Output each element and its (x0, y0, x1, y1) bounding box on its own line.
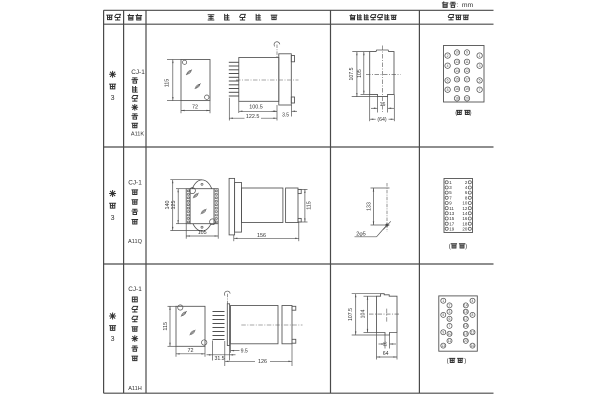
svg-text:125: 125 (171, 201, 177, 210)
svg-text:10: 10 (448, 332, 452, 336)
svg-text:3: 3 (111, 95, 115, 102)
svg-text:CJ-1: CJ-1 (128, 180, 142, 187)
svg-text:115: 115 (163, 322, 169, 331)
svg-text:18: 18 (455, 97, 459, 101)
svg-text:1: 1 (479, 54, 481, 58)
svg-text:105: 105 (198, 230, 207, 236)
svg-text:15: 15 (455, 78, 459, 82)
svg-text:3: 3 (479, 64, 481, 68)
svg-text:(64): (64) (377, 117, 386, 123)
svg-text:4: 4 (472, 299, 474, 303)
svg-text:156: 156 (257, 233, 266, 239)
svg-text:3: 3 (111, 336, 115, 343)
svg-text:CJ-1: CJ-1 (131, 69, 145, 76)
svg-text:9.5: 9.5 (241, 349, 248, 355)
svg-text:20: 20 (462, 226, 467, 231)
svg-text:16: 16 (471, 344, 475, 348)
svg-text:115: 115 (165, 79, 171, 88)
svg-text:6: 6 (447, 79, 449, 83)
svg-text:13: 13 (455, 60, 459, 64)
svg-text:19: 19 (449, 226, 454, 231)
svg-text:72: 72 (192, 104, 198, 110)
svg-text:14: 14 (464, 304, 468, 308)
svg-text:16: 16 (380, 102, 386, 108)
svg-text:126: 126 (258, 359, 267, 365)
svg-text:31.5: 31.5 (214, 356, 224, 362)
svg-text:(: ( (447, 358, 450, 365)
svg-text:CJ-1: CJ-1 (128, 286, 142, 293)
svg-text:8: 8 (472, 313, 474, 317)
svg-text:18: 18 (464, 324, 468, 328)
svg-text:A11H: A11H (128, 386, 142, 392)
svg-text:105: 105 (357, 69, 363, 78)
svg-text:mm: mm (462, 2, 474, 9)
svg-text:11: 11 (448, 339, 452, 343)
svg-text:100.5: 100.5 (249, 104, 263, 110)
svg-text:12: 12 (465, 69, 469, 73)
svg-text:A11Q: A11Q (128, 239, 143, 245)
svg-text:9: 9 (442, 330, 444, 334)
svg-text:20: 20 (464, 339, 468, 343)
svg-text:3: 3 (449, 310, 451, 314)
svg-text:2: 2 (449, 304, 451, 308)
svg-text:20: 20 (465, 97, 469, 101)
svg-text:19: 19 (464, 332, 468, 336)
svg-text:122.5: 122.5 (246, 114, 260, 120)
svg-text:9: 9 (466, 51, 468, 55)
svg-text:5: 5 (442, 313, 444, 317)
svg-text::: : (457, 2, 459, 9)
svg-text:16: 16 (383, 341, 388, 346)
svg-text:7: 7 (449, 324, 451, 328)
svg-text:16: 16 (455, 87, 459, 91)
svg-text:104: 104 (360, 310, 366, 319)
svg-text:A11K: A11K (131, 132, 145, 138)
svg-text:): ) (465, 243, 467, 250)
svg-text:64: 64 (383, 351, 389, 357)
svg-text:11: 11 (465, 60, 469, 64)
svg-text:1: 1 (442, 299, 444, 303)
svg-text:19: 19 (465, 87, 469, 91)
svg-text:4: 4 (447, 64, 449, 68)
svg-text:10: 10 (455, 51, 459, 55)
svg-text:17: 17 (465, 78, 469, 82)
svg-text:2: 2 (447, 54, 449, 58)
svg-text:6: 6 (449, 317, 451, 321)
svg-text:107.5: 107.5 (349, 67, 355, 80)
svg-text:15: 15 (464, 310, 468, 314)
svg-text:): ) (464, 358, 466, 365)
svg-text:12: 12 (471, 330, 475, 334)
svg-text:13: 13 (441, 344, 445, 348)
svg-text:107.5: 107.5 (348, 308, 354, 321)
svg-text:14: 14 (455, 69, 459, 73)
svg-text:8: 8 (447, 88, 449, 92)
svg-text:133: 133 (366, 202, 372, 211)
svg-text:3.5: 3.5 (282, 113, 289, 119)
svg-text:5: 5 (479, 79, 481, 83)
svg-text:3: 3 (111, 215, 115, 222)
svg-text:115: 115 (306, 201, 312, 210)
svg-text:7: 7 (479, 88, 481, 92)
svg-text:17: 17 (464, 317, 468, 321)
svg-text:72: 72 (188, 348, 194, 354)
